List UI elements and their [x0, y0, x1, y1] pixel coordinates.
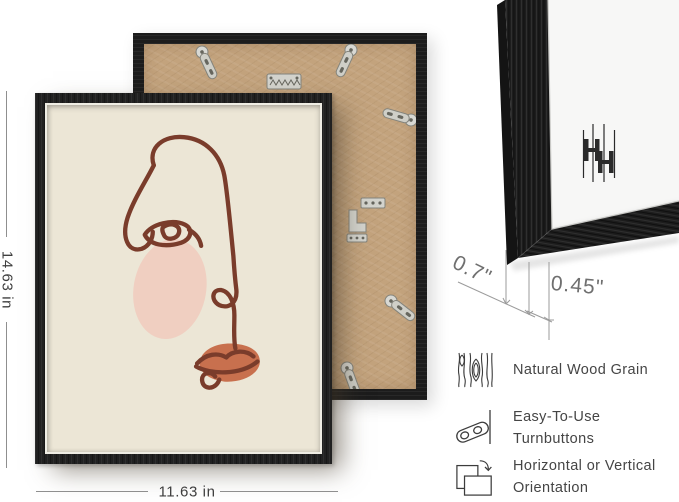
wall-bracket-icon	[347, 198, 385, 242]
height-dimension-label: 14.63 in	[0, 250, 16, 308]
feature-label: Natural Wood Grain	[513, 359, 648, 381]
dimension-line	[6, 322, 7, 468]
dimension-line	[6, 91, 7, 237]
turnbutton-icon	[339, 360, 362, 389]
feature-label: Easy-To-Use Turnbuttons	[513, 406, 677, 451]
frame-corner-closeup	[440, 0, 679, 350]
product-image: 14.63 in 11.63 in	[0, 0, 679, 502]
feature-label: Horizontal or Vertical Orientation	[513, 455, 677, 500]
height-dimension: 14.63 in	[6, 91, 8, 468]
turnbutton-icon	[194, 44, 220, 81]
turnbutton-icon	[381, 106, 416, 127]
turnbutton-icon	[333, 44, 359, 79]
width-dimension-label: 11.63 in	[158, 484, 215, 501]
turnbutton-icon	[383, 293, 416, 324]
turnbutton-icon	[455, 407, 495, 449]
line-art-print	[47, 105, 320, 452]
width-dimension: 11.63 in	[36, 484, 338, 500]
sawtooth-hanger-icon	[267, 74, 301, 89]
corner-drawing	[440, 0, 679, 350]
wood-grain-icon	[455, 349, 495, 391]
feature-wood-grain: Natural Wood Grain	[455, 349, 677, 391]
dimension-line	[220, 491, 338, 492]
feature-turnbuttons: Easy-To-Use Turnbuttons	[455, 406, 677, 451]
orientation-icon	[455, 456, 495, 498]
feature-orientation: Horizontal or Vertical Orientation	[455, 455, 677, 500]
face-width-dimension-label: 0.45"	[550, 272, 605, 301]
abstract-face-art	[47, 105, 320, 452]
frame-front-view	[35, 93, 332, 464]
dimension-line	[36, 491, 148, 492]
